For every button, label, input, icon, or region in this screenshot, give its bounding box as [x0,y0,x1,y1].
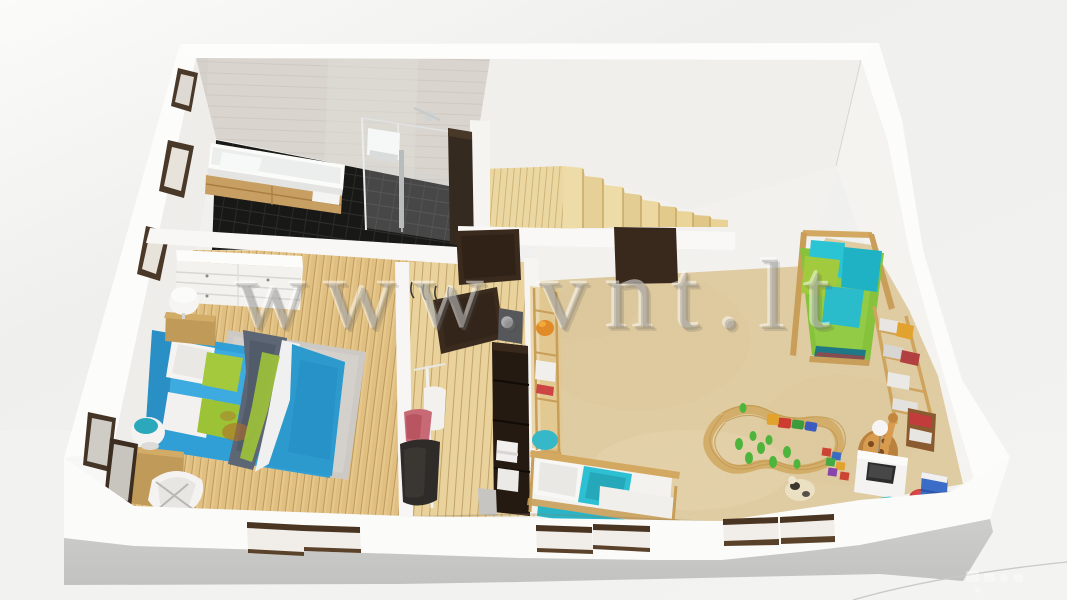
svg-text:www.vnt.lt: www.vnt.lt [236,240,850,351]
